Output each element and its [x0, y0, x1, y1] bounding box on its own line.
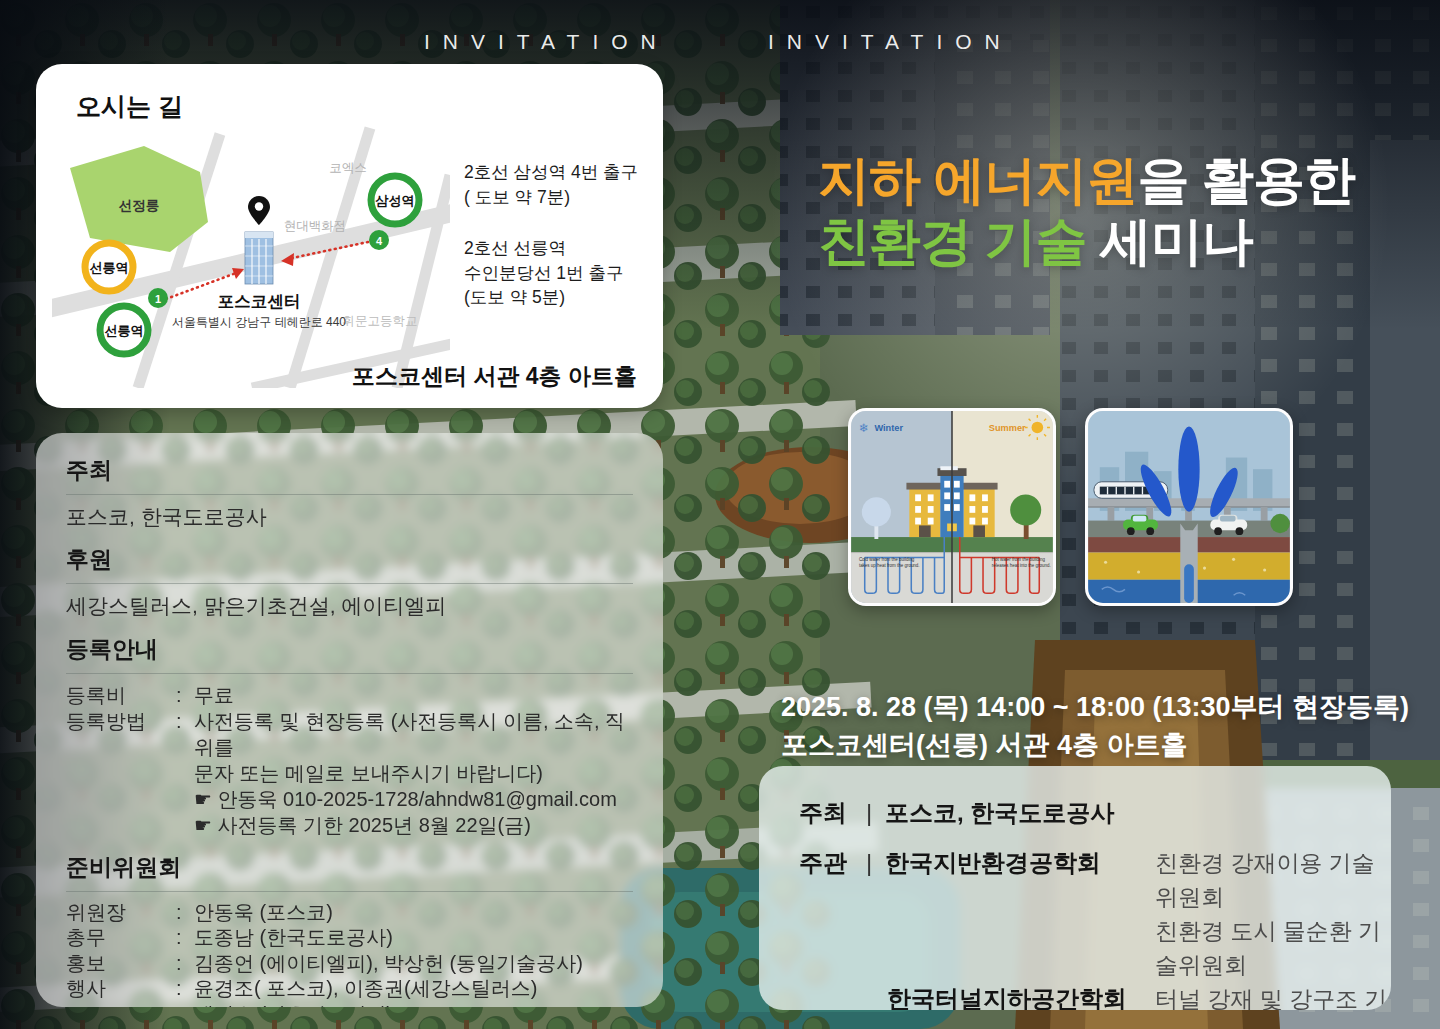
title-line1-highlight: 지하 에너지원 — [818, 151, 1137, 209]
host-value: 포스코, 한국도로공사 — [66, 503, 633, 530]
registration-contact: ☛ 안동욱 010-2025-1728/ahndw81@gmail.com — [194, 788, 617, 810]
committee-colon: : — [176, 900, 194, 926]
committee-names-2: 백민수 (맑은기초건설) — [194, 1002, 633, 1007]
exit-1-badge: 1 — [148, 288, 168, 308]
posco-building-icon — [245, 232, 273, 284]
committee-role: 총무 — [66, 925, 176, 951]
committee-role: 위원장 — [66, 900, 176, 926]
org-organizer-row-1: 주관 | 한국지반환경공학회 친환경 강재이용 기술위원회 친환경 도시 물순환… — [799, 846, 1391, 982]
invitation-poster: INVITATION INVITATION 오시는 길 선정릉 코엑스 현대백화… — [0, 0, 1440, 1029]
map-label-coex: 코엑스 — [329, 161, 367, 175]
seolleung-station-green-marker: 선릉역 — [100, 306, 148, 354]
org-society-2-committees: 터널 강재 및 강구조 기술위원회 지하고속도로 기술위원회 — [1141, 982, 1391, 1010]
directions-card: 오시는 길 선정릉 코엑스 현대백화점 휘문고등학교 — [36, 64, 663, 408]
committee-row-chair: 위원장 : 안동욱 (포스코) — [66, 900, 633, 926]
map-pin-icon — [248, 196, 270, 225]
committee-names: 김종언 (에이티엘피), 박상헌 (동일기술공사) — [194, 951, 633, 977]
svg-text:선릉역: 선릉역 — [105, 323, 144, 338]
svg-text:1: 1 — [155, 293, 161, 305]
seolleung-station-yellow-marker: 선릉역 — [85, 243, 133, 291]
title-line2-rest: 세미나 — [1086, 212, 1252, 270]
summer-label: Summer — [989, 423, 1026, 433]
org-organizer-label: 주관 — [799, 846, 853, 982]
location-map: 선정릉 코엑스 현대백화점 휘문고등학교 — [52, 120, 450, 388]
snowflake-icon: ❄ — [859, 421, 869, 434]
committee-colon: : — [176, 951, 194, 977]
fee-value: 무료 — [194, 682, 633, 708]
direction-seolleung: 2호선 선릉역 수인분당선 1번 출구 (도보 약 5분) — [464, 236, 638, 311]
direction1-line1: 2호선 삼성역 4번 출구 — [464, 160, 638, 185]
committee-section-header: 준비위원회 — [66, 852, 633, 892]
committee-names: 도종남 (한국도로공사) — [194, 925, 633, 951]
method-colon: : — [176, 708, 194, 838]
winter-label: Winter — [874, 423, 903, 433]
org-society-1-committees: 친환경 강재이용 기술위원회 친환경 도시 물순환 기술위원회 — [1141, 846, 1391, 982]
summer-caption-line2: releases heat into the ground. — [992, 563, 1051, 568]
venue-name: 포스코센터 서관 4층 아트홀 — [352, 361, 637, 392]
map-label-posco-center: 포스코센터 — [218, 292, 301, 310]
host-section-header: 주최 — [66, 455, 633, 495]
event-date-line: 2025. 8. 28 (목) 14:00 ~ 18:00 (13:30부터 현… — [781, 688, 1409, 726]
seminar-title: 지하 에너지원을 활용한 친환경 기술 세미나 — [818, 150, 1355, 272]
summer-caption-line1: Hot water from the building — [992, 557, 1046, 562]
event-info-card: 주최 포스코, 한국도로공사 후원 세강스틸러스, 맑은기초건설, 에이티엘피 … — [36, 433, 663, 1007]
method-line1: 사전등록 및 현장등록 (사전등록시 이름, 소속, 직위를 — [194, 710, 625, 758]
well-water — [1184, 564, 1194, 603]
registration-fee-row: 등록비 : 무료 — [66, 682, 633, 708]
direction-samseong: 2호선 삼성역 4번 출구 ( 도보 약 7분) — [464, 160, 638, 210]
registration-section-header: 등록안내 — [66, 634, 633, 674]
committee-row-pr: 홍보 : 김종언 (에이티엘피), 박상헌 (동일기술공사) — [66, 951, 633, 977]
committee-row-event: 행사 : 윤경조( 포스코), 이종권(세강스틸러스) — [66, 976, 633, 1002]
committee-names: 윤경조( 포스코), 이종권(세강스틸러스) — [194, 976, 633, 1002]
sponsor-section-header: 후원 — [66, 544, 633, 584]
org-host-value: 포스코, 한국도로공사 — [885, 796, 1391, 830]
org-host-row: 주최 | 포스코, 한국도로공사 — [799, 796, 1391, 830]
committee-row-event-cont: 백민수 (맑은기초건설) — [66, 1002, 633, 1007]
org-society-1: 한국지반환경공학회 — [885, 846, 1135, 982]
map-label-dept-store: 현대백화점 — [284, 219, 347, 233]
committee-names: 안동욱 (포스코) — [194, 900, 633, 926]
registration-deadline: ☛ 사전등록 기한 2025년 8월 22일(금) — [194, 814, 531, 836]
org-society-2: 한국터널지하공간학회 — [885, 982, 1135, 1010]
org-host-label: 주최 — [799, 796, 853, 830]
event-venue-line: 포스코센터(선릉) 서관 4층 아트홀 — [781, 726, 1409, 764]
org-host-sep: | — [859, 796, 879, 830]
org-organizer-row-2: 한국터널지하공간학회 터널 강재 및 강구조 기술위원회 지하고속도로 기술위원… — [799, 982, 1391, 1010]
direction2-line1: 2호선 선릉역 — [464, 236, 638, 261]
fee-label: 등록비 — [66, 682, 176, 708]
sponsor-value: 세강스틸러스, 맑은기초건설, 에이티엘피 — [66, 592, 633, 619]
groundwater-diagram-card — [1085, 408, 1293, 606]
samseong-station-marker: 삼성역 — [371, 176, 419, 224]
exit-4-badge: 4 — [369, 230, 389, 250]
committee-row-secretary: 총무 : 도종남 (한국도로공사) — [66, 925, 633, 951]
direction2-line3: (도보 약 5분) — [464, 285, 638, 310]
winter-caption-line1: Cold water from the building — [859, 557, 915, 562]
invitation-text-left: INVITATION — [424, 30, 669, 54]
geothermal-diagram: ❄ Winter Summer Cold water from the buil… — [851, 411, 1053, 603]
event-datetime: 2025. 8. 28 (목) 14:00 ~ 18:00 (13:30부터 현… — [781, 688, 1409, 764]
direction1-line2: ( 도보 약 7분) — [464, 185, 638, 210]
committee-line: 터널 강재 및 강구조 기술위원회 — [1155, 986, 1388, 1010]
organizer-card: 주최 | 포스코, 한국도로공사 주관 | 한국지반환경공학회 친환경 강재이용… — [759, 766, 1391, 1010]
committee-colon: : — [176, 925, 194, 951]
org-organizer-sep: | — [859, 846, 879, 982]
title-line2: 친환경 기술 세미나 — [818, 211, 1355, 272]
svg-text:삼성역: 삼성역 — [375, 193, 415, 208]
invitation-text-right: INVITATION — [768, 30, 1013, 54]
committee-role: 홍보 — [66, 951, 176, 977]
map-label-address: 서울특별시 강남구 테헤란로 440 — [172, 315, 346, 329]
bush — [1270, 514, 1289, 533]
registration-method-row: 등록방법 : 사전등록 및 현장등록 (사전등록시 이름, 소속, 직위를 문자… — [66, 708, 633, 838]
title-line1: 지하 에너지원을 활용한 — [818, 150, 1355, 211]
committee-colon: : — [176, 976, 194, 1002]
map-label-park: 선정릉 — [119, 198, 160, 213]
fee-colon: : — [176, 682, 194, 708]
winter-caption-line2: takes up heat from the ground. — [859, 563, 920, 568]
committee-line: 친환경 도시 물순환 기술위원회 — [1155, 918, 1381, 978]
geothermal-diagram-card: ❄ Winter Summer Cold water from the buil… — [848, 408, 1056, 606]
transit-directions: 2호선 삼성역 4번 출구 ( 도보 약 7분) 2호선 선릉역 수인분당선 1… — [464, 160, 638, 336]
title-line1-rest: 을 활용한 — [1137, 151, 1354, 209]
committee-role: 행사 — [66, 976, 176, 1002]
method-value: 사전등록 및 현장등록 (사전등록시 이름, 소속, 직위를 문자 또는 메일로… — [194, 708, 633, 838]
method-label: 등록방법 — [66, 708, 176, 838]
committee-line: 친환경 강재이용 기술위원회 — [1155, 850, 1375, 910]
svg-text:선릉역: 선릉역 — [90, 260, 129, 275]
map-label-school: 휘문고등학교 — [343, 314, 418, 328]
direction2-line2: 수인분당선 1번 출구 — [464, 261, 638, 286]
method-line2: 문자 또는 메일로 보내주시기 바랍니다) — [194, 762, 543, 784]
title-line2-highlight: 친환경 기술 — [818, 212, 1086, 270]
svg-text:4: 4 — [376, 235, 383, 247]
directions-card-title: 오시는 길 — [76, 90, 183, 123]
groundwater-diagram — [1088, 411, 1290, 603]
